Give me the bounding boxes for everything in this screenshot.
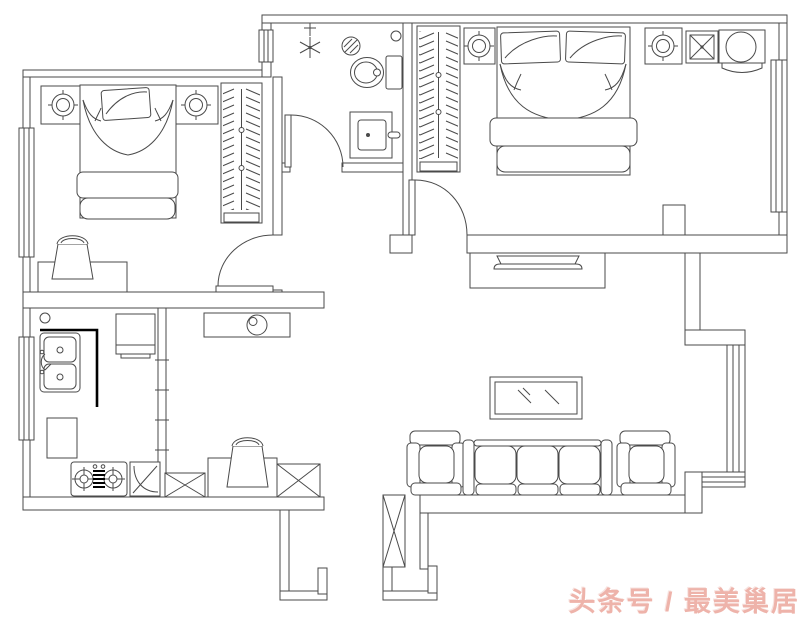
wall-bathroom-bottom	[342, 163, 412, 172]
bed-footer	[490, 118, 637, 146]
wardrobe	[417, 26, 460, 172]
double-basin-sink-icon	[40, 333, 80, 392]
wall-livingroom-top	[467, 235, 787, 253]
room-bedroom-2	[417, 26, 765, 175]
wall-top	[262, 15, 787, 23]
gas-stove-icon	[71, 462, 127, 496]
shower-head-icon	[300, 23, 320, 58]
wall-dining-bottom	[23, 497, 324, 510]
tv-icon	[494, 256, 582, 269]
washbasin-icon	[350, 112, 400, 158]
bed-footer	[77, 172, 178, 198]
window-kitchen-left	[19, 337, 34, 440]
refrigerator-icon	[116, 314, 155, 358]
column-x-right-icon	[277, 464, 320, 497]
window-bedroom1-left	[19, 128, 34, 257]
column-x-tall-icon	[383, 495, 405, 567]
watermark-text: 头条号 / 最美巢居	[568, 580, 800, 619]
round-chair-icon	[719, 30, 765, 73]
window-living-right	[727, 345, 745, 473]
wall-corner-pillar	[685, 472, 702, 513]
armchair-right-icon	[617, 431, 675, 495]
door-bathroom	[285, 115, 343, 167]
column-x-left-icon	[165, 473, 205, 497]
room-bathroom	[300, 23, 402, 158]
door-bedroom1	[216, 235, 273, 292]
single-bed	[77, 85, 178, 219]
drain-small-icon	[391, 31, 401, 41]
armchair-left-icon	[407, 431, 465, 495]
shoe-cabinet	[204, 313, 290, 337]
window-living-corner	[702, 472, 745, 487]
wall-entry-right-step	[428, 566, 437, 593]
floor-plan-page: 头条号 / 最美巢居	[0, 0, 810, 627]
wall-entry-right-vert	[420, 513, 428, 569]
door-bedroom2	[409, 180, 467, 235]
room-kitchen	[40, 313, 160, 496]
window-bathroom-left	[259, 30, 273, 62]
base-cabinet	[47, 418, 77, 458]
room-dining	[165, 313, 320, 497]
wall-pier-bedroom2	[663, 205, 685, 235]
wall-bedroom1-bottom	[23, 292, 324, 308]
wall-livingroom-bottom	[420, 495, 685, 513]
wall-bedroom1-right	[273, 77, 282, 235]
toilet-icon	[351, 56, 403, 89]
double-bed	[490, 27, 637, 175]
chair	[52, 236, 93, 279]
floor-drain-icon	[342, 37, 360, 55]
wall-bedroom1-top	[23, 70, 271, 77]
bowl-icon	[247, 315, 267, 335]
gas-meter-icon	[40, 313, 50, 323]
wall-entry-left-step	[318, 568, 327, 594]
coffee-table-icon	[490, 377, 582, 419]
floor-plan-drawing	[0, 0, 810, 627]
room-bedroom-1	[38, 83, 262, 292]
window-bedroom2-right	[771, 60, 787, 212]
chair	[227, 438, 268, 487]
wall-livingroom-top-left	[390, 235, 412, 253]
corner-cabinet-icon	[130, 462, 160, 496]
wall-entry-left-vert	[280, 510, 289, 600]
wall-niche-bottom	[685, 330, 745, 345]
faucet-icon	[388, 132, 400, 138]
wardrobe	[221, 83, 262, 223]
sofa-three-seat-icon	[463, 440, 612, 495]
x-stool-icon	[686, 31, 718, 63]
